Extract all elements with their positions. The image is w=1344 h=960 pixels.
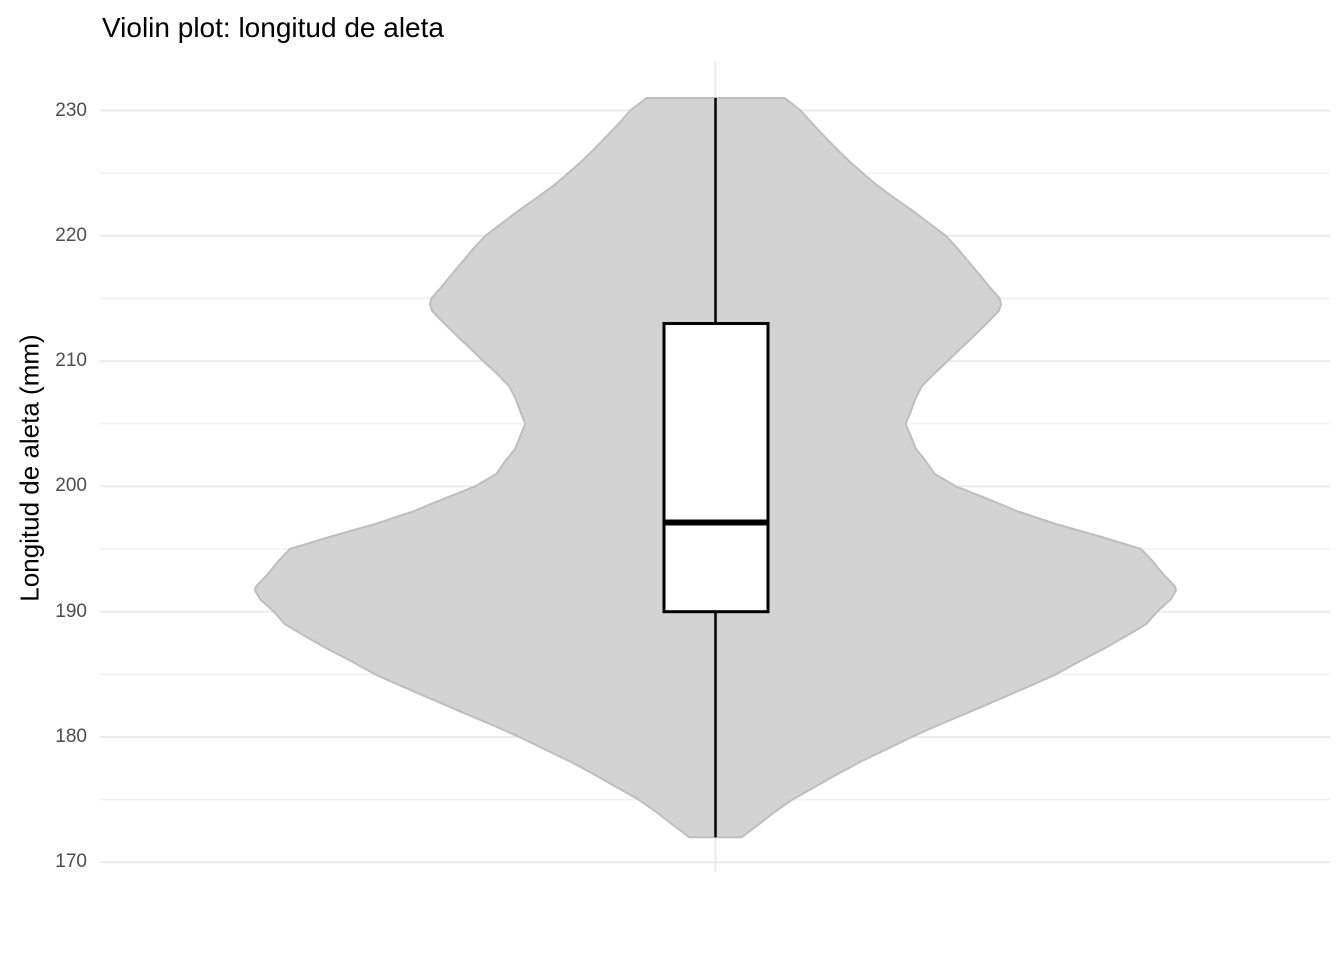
violin-plot-figure: Violin plot: longitud de aleta Longitud … [0,0,1344,960]
y-tick-label: 210 [19,351,87,371]
plot-area [0,0,1344,960]
chart-title: Violin plot: longitud de aleta [102,12,444,44]
boxplot-box [664,324,768,612]
y-tick-label: 190 [19,602,87,622]
y-tick-label: 200 [19,476,87,496]
y-tick-label: 180 [19,727,87,747]
y-tick-label: 170 [19,852,87,872]
y-tick-label: 220 [19,226,87,246]
y-tick-label: 230 [19,101,87,121]
y-axis-title: Longitud de aleta (mm) [15,334,46,601]
